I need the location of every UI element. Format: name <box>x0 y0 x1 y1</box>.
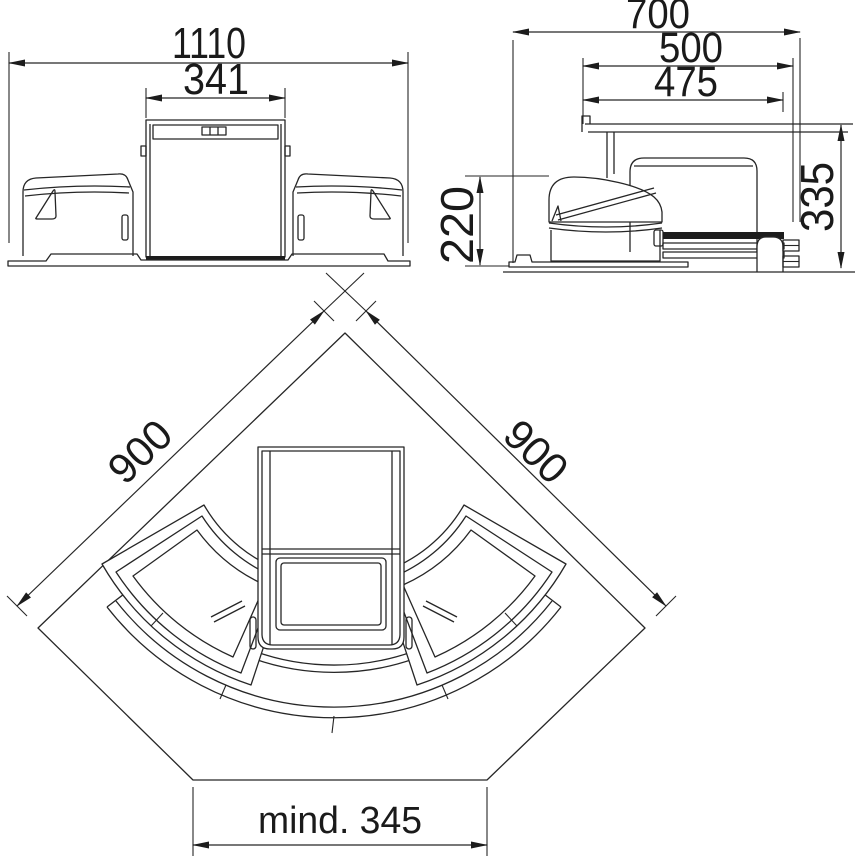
vent-slots <box>202 127 226 135</box>
clip-left <box>141 146 146 156</box>
dim-label-900-right: 900 <box>495 410 578 492</box>
mounting-bracket <box>757 237 799 272</box>
dim-label-220: 220 <box>431 186 483 264</box>
dim-label-900-left: 900 <box>98 410 181 492</box>
bin-right-tab <box>298 215 304 240</box>
bin-left-tab <box>122 215 128 240</box>
technical-drawing: 1110 341 <box>0 0 860 860</box>
dim-label-345: mind. 345 <box>258 800 422 842</box>
bin-left-front <box>23 174 133 256</box>
dim-220: 220 <box>431 176 549 266</box>
center-container-plan <box>250 447 412 649</box>
side-view: 700 500 475 <box>431 0 855 272</box>
base-plate-front <box>8 254 410 266</box>
plan-view: 900 900 <box>7 273 676 856</box>
dim-label-335: 335 <box>791 162 843 232</box>
dim-label-475: 475 <box>654 58 718 106</box>
bin-side <box>549 177 663 261</box>
dim-label-341: 341 <box>183 55 249 104</box>
carousel-bin-right <box>380 505 566 685</box>
dim-min-345: mind. 345 <box>193 787 487 856</box>
bin-right-front <box>293 174 403 256</box>
front-view: 1110 341 <box>8 19 410 266</box>
center-container-front <box>141 120 290 260</box>
clip-right <box>285 146 290 156</box>
